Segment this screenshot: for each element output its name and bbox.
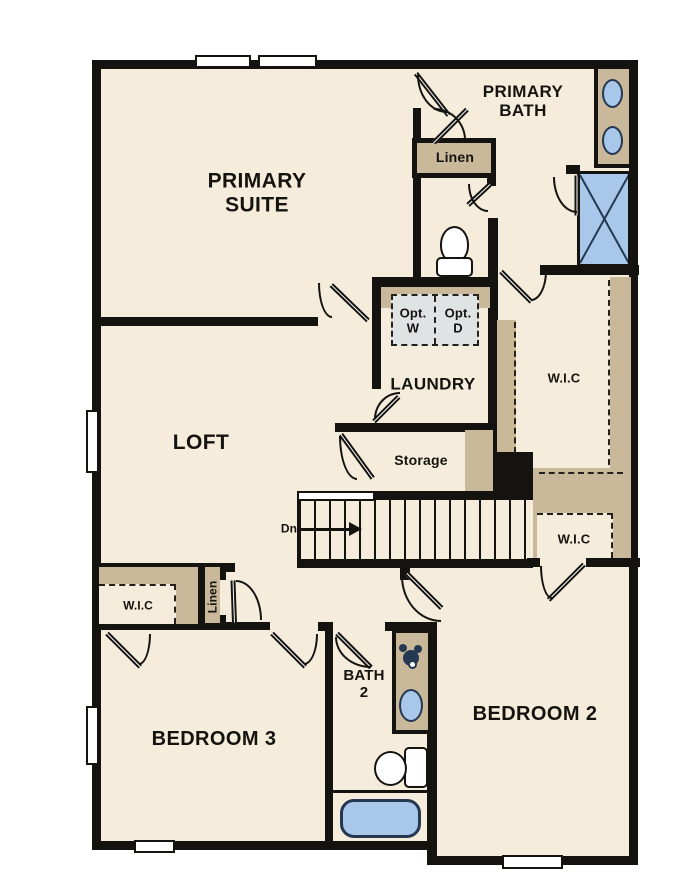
closet-shelf-line xyxy=(608,280,610,475)
closet-label-linen-lower: Linen xyxy=(206,581,219,614)
room-label-laundry: LAUNDRY xyxy=(390,374,475,393)
wall xyxy=(373,491,533,500)
sink-icon xyxy=(602,126,623,155)
chase xyxy=(490,452,533,493)
closet-shelf xyxy=(610,277,631,500)
faucet-icon xyxy=(399,644,407,652)
room-label-wic-primary: W.I.C xyxy=(548,372,581,387)
storage-shelf xyxy=(465,430,493,491)
faucet-icon xyxy=(408,660,417,669)
wall xyxy=(198,563,205,630)
wall xyxy=(372,287,381,389)
appliance-label-opt-washer: Opt. W xyxy=(400,306,427,335)
wall xyxy=(413,172,421,279)
room-label-bath2: BATH 2 xyxy=(343,668,384,702)
sink-icon xyxy=(602,79,623,108)
room-label-primary-bath: PRIMARY BATH xyxy=(483,82,564,120)
wall xyxy=(101,317,318,326)
wall xyxy=(372,277,497,287)
washer-dryer-divider xyxy=(434,296,436,344)
window xyxy=(502,855,563,869)
wall xyxy=(586,558,640,567)
room-label-bedroom3: BEDROOM 3 xyxy=(152,728,277,750)
wall xyxy=(297,559,533,568)
window xyxy=(195,55,251,68)
stairs-direction-arrow xyxy=(301,528,351,531)
closet-shelf-line xyxy=(514,322,516,453)
window xyxy=(258,55,317,68)
window xyxy=(134,840,175,853)
room-label-primary-suite: PRIMARY SUITE xyxy=(208,169,307,216)
room-label-wic-bedroom3: W.I.C xyxy=(123,599,153,612)
toilet-icon xyxy=(374,751,407,786)
room-label-loft: LOFT xyxy=(173,431,229,455)
stairs-label-down: Dn xyxy=(281,522,297,535)
window xyxy=(86,410,99,473)
wall xyxy=(325,622,333,848)
wall xyxy=(220,563,226,580)
toilet-tank xyxy=(436,257,473,277)
window xyxy=(86,706,99,765)
appliance-label-opt-dryer: Opt. D xyxy=(445,306,472,335)
wall xyxy=(333,790,427,793)
wall xyxy=(527,558,540,567)
stair-rail xyxy=(297,491,375,501)
closet-label-linen-upper: Linen xyxy=(436,150,474,166)
room-label-bedroom2: BEDROOM 2 xyxy=(473,703,598,725)
bathtub-icon xyxy=(340,799,421,838)
faucet-icon xyxy=(414,645,422,653)
sink-icon xyxy=(399,689,423,722)
closet-shelf-line xyxy=(539,472,623,474)
floor-plan: PRIMARY SUITE PRIMARY BATH Linen LAUNDRY… xyxy=(0,0,679,880)
stairs-arrow-head xyxy=(349,522,362,536)
toilet-tank xyxy=(404,747,428,788)
wall xyxy=(92,60,638,69)
room-label-storage: Storage xyxy=(394,453,448,469)
room-label-wic-hall: W.I.C xyxy=(558,533,591,548)
shower-icon xyxy=(577,171,631,267)
